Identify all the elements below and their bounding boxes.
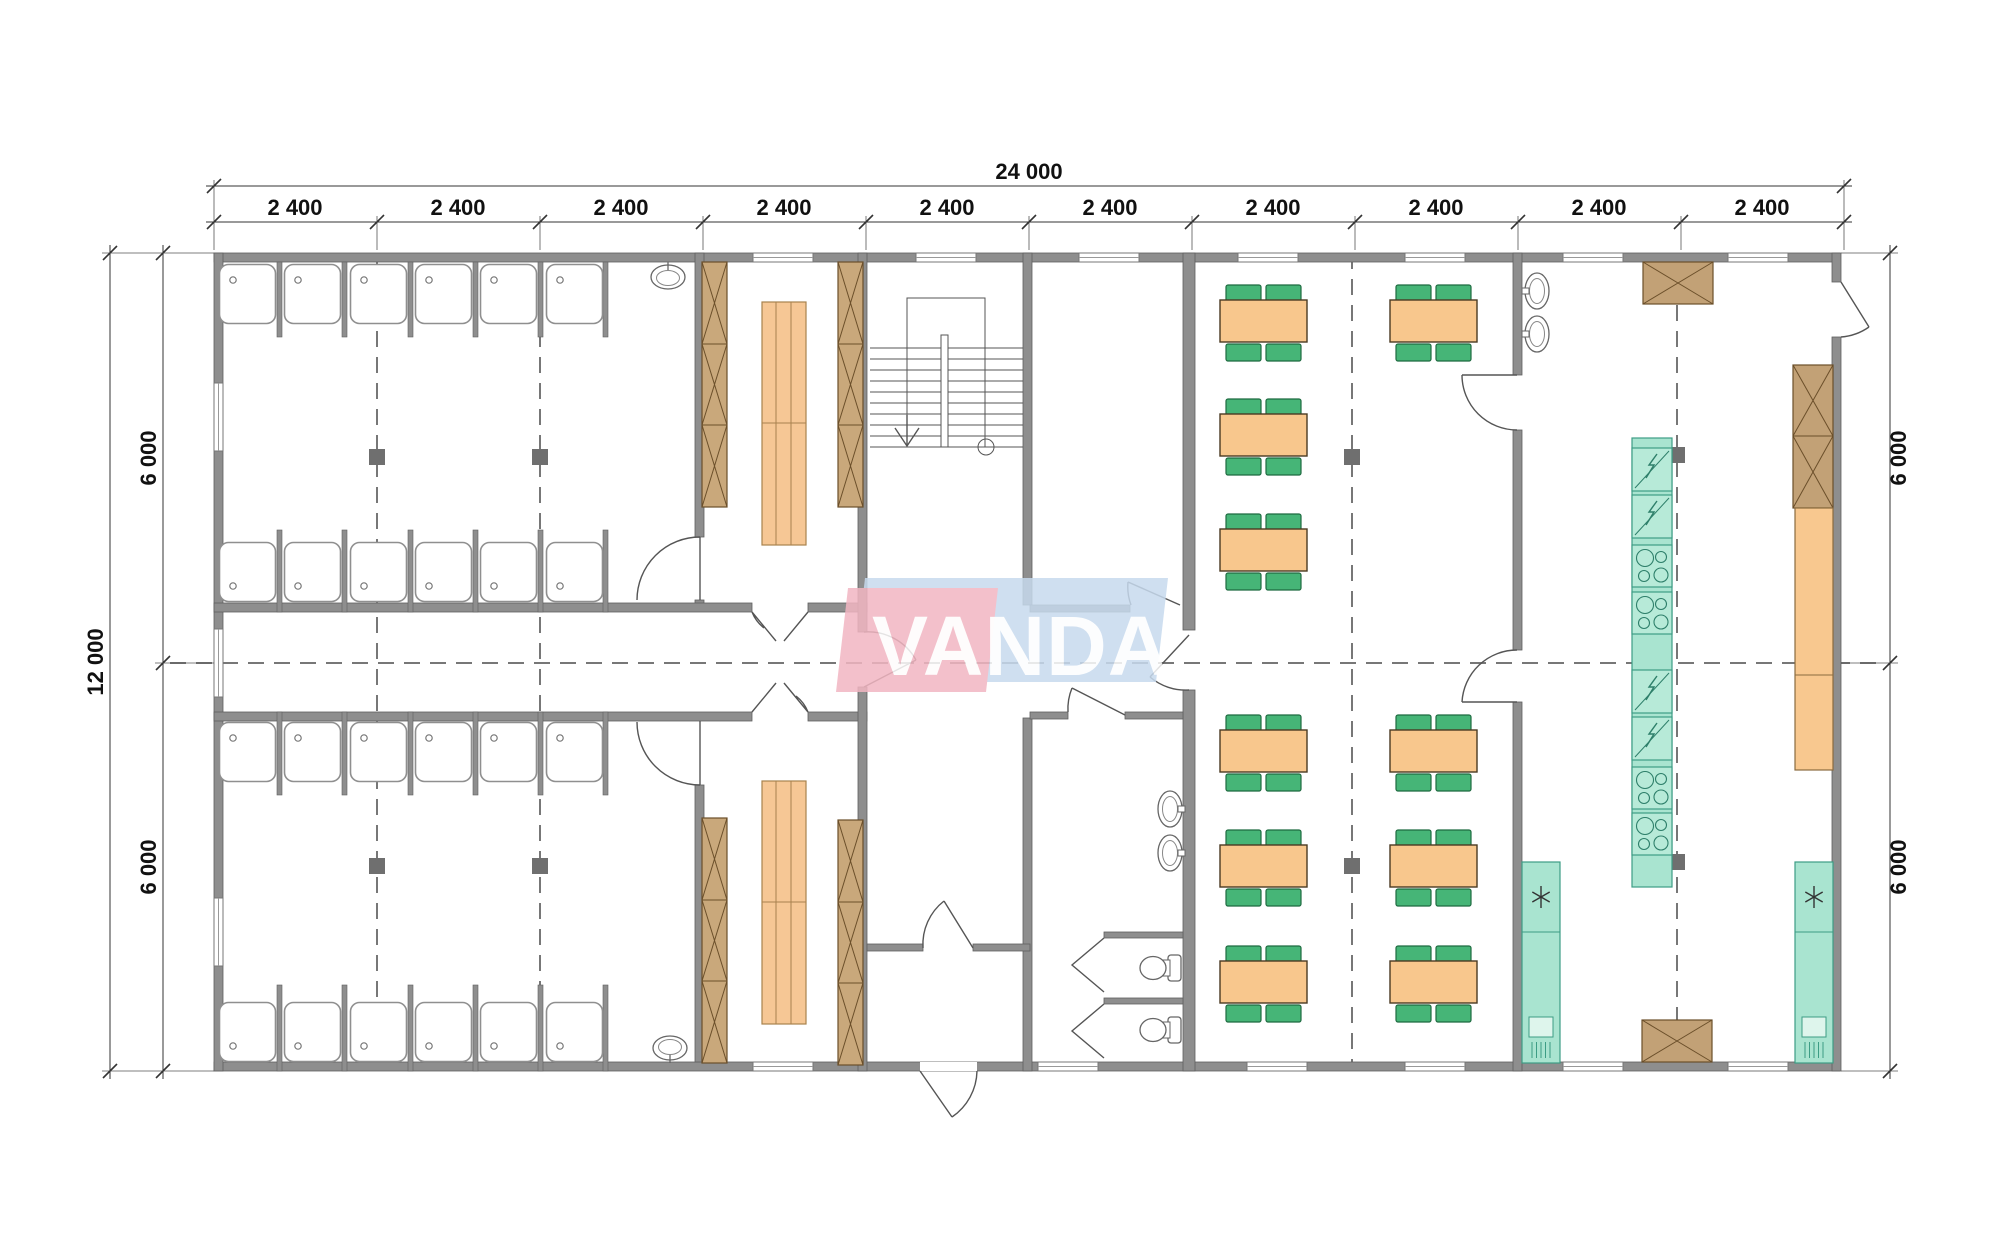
refrigerator bbox=[1795, 862, 1833, 1063]
stove bbox=[1632, 545, 1672, 587]
shower-cabin bbox=[481, 543, 537, 602]
dining-table bbox=[1390, 715, 1477, 791]
wash-sink bbox=[653, 1036, 687, 1063]
locker-column bbox=[838, 820, 863, 1065]
storage-cabinet bbox=[1642, 1020, 1712, 1062]
door-double bbox=[752, 612, 808, 641]
locker-column bbox=[702, 818, 727, 1063]
window bbox=[753, 253, 813, 262]
toilet bbox=[1140, 1017, 1181, 1043]
locker-column bbox=[838, 262, 863, 507]
dim-bay: 2 400 bbox=[1408, 195, 1463, 220]
dim-bay: 2 400 bbox=[1571, 195, 1626, 220]
toilet-room bbox=[1140, 791, 1185, 1043]
door bbox=[637, 721, 700, 785]
shower-cabin bbox=[220, 1003, 276, 1062]
locker-column bbox=[702, 262, 727, 507]
door bbox=[1462, 650, 1517, 702]
electric-appliance bbox=[1632, 670, 1672, 713]
dining-table bbox=[1390, 946, 1477, 1022]
window bbox=[214, 629, 223, 697]
window bbox=[1563, 253, 1623, 262]
dining-table bbox=[1220, 285, 1307, 361]
shower-cabin bbox=[481, 723, 537, 782]
shower-cabin bbox=[416, 543, 472, 602]
shower-cabin bbox=[285, 265, 341, 324]
stair-direction-arrow bbox=[895, 415, 919, 446]
dim-total-width: 24 000 bbox=[995, 159, 1062, 184]
stove bbox=[1632, 592, 1672, 634]
door-entrance bbox=[1841, 282, 1869, 337]
shower-cabin bbox=[416, 265, 472, 324]
shower-cabin bbox=[351, 265, 407, 324]
kitchen-basin bbox=[1522, 273, 1549, 309]
dim-half-height: 6 000 bbox=[136, 839, 161, 894]
door-entrance bbox=[920, 1071, 977, 1117]
shower-cabin bbox=[220, 265, 276, 324]
stair-rail bbox=[941, 335, 948, 447]
wall-right bbox=[1832, 253, 1841, 282]
kitchen-basin bbox=[1522, 316, 1549, 352]
floor-plan-svg: 24 000 2 400 2 400 2 400 2 400 2 400 2 4… bbox=[0, 0, 2000, 1256]
logo-text: VANDA bbox=[872, 599, 1169, 693]
window bbox=[1405, 253, 1465, 262]
dim-half-height: 6 000 bbox=[1886, 839, 1911, 894]
vanda-logo: VANDA bbox=[836, 578, 1169, 693]
window bbox=[214, 383, 223, 451]
dim-bay: 2 400 bbox=[1082, 195, 1137, 220]
electric-appliance bbox=[1632, 495, 1672, 538]
window bbox=[1728, 253, 1788, 262]
electric-appliance bbox=[1632, 717, 1672, 760]
dimension-top: 24 000 2 400 2 400 2 400 2 400 2 400 2 4… bbox=[206, 159, 1852, 250]
shower-cabin bbox=[220, 543, 276, 602]
dim-total-height: 12 000 bbox=[83, 628, 108, 695]
dining-room bbox=[1220, 285, 1477, 1022]
window bbox=[1563, 1062, 1623, 1071]
shower-cabin bbox=[351, 1003, 407, 1062]
dim-bay: 2 400 bbox=[1734, 195, 1789, 220]
window bbox=[916, 253, 976, 262]
stairwell bbox=[870, 298, 1023, 455]
door bbox=[1462, 375, 1517, 430]
dining-table bbox=[1390, 285, 1477, 361]
window bbox=[1038, 1062, 1098, 1071]
dim-bay: 2 400 bbox=[267, 195, 322, 220]
shower-cabin bbox=[351, 543, 407, 602]
dining-table bbox=[1390, 830, 1477, 906]
dining-table bbox=[1220, 514, 1307, 590]
shower-room-top bbox=[220, 262, 686, 612]
shower-cabin bbox=[481, 1003, 537, 1062]
shower-cabin bbox=[547, 543, 603, 602]
window bbox=[1247, 1062, 1307, 1071]
shower-cabin bbox=[285, 1003, 341, 1062]
kitchen-counter bbox=[1795, 508, 1833, 770]
wardrobe-top bbox=[702, 262, 863, 545]
window bbox=[1728, 1062, 1788, 1071]
dim-bay: 2 400 bbox=[430, 195, 485, 220]
storage-cabinet bbox=[1643, 262, 1713, 304]
electric-appliance bbox=[1632, 448, 1672, 491]
door bbox=[923, 901, 973, 948]
shower-cabin bbox=[547, 723, 603, 782]
door bbox=[637, 537, 700, 600]
window bbox=[1405, 1062, 1465, 1071]
shower-cabin bbox=[220, 723, 276, 782]
dining-table bbox=[1220, 946, 1307, 1022]
wash-sink bbox=[651, 262, 685, 289]
dim-half-height: 6 000 bbox=[1886, 430, 1911, 485]
door-wc bbox=[1072, 938, 1104, 992]
shower-room-bottom bbox=[220, 712, 688, 1071]
stove bbox=[1632, 813, 1672, 855]
window bbox=[753, 1062, 813, 1071]
door-double bbox=[752, 683, 808, 712]
toilet bbox=[1140, 955, 1181, 981]
shower-cabin bbox=[547, 265, 603, 324]
shower-cabin bbox=[285, 543, 341, 602]
shower-cabin bbox=[416, 1003, 472, 1062]
storage-cabinet bbox=[1793, 365, 1833, 508]
shower-cabin bbox=[285, 723, 341, 782]
floor-plan-page: 24 000 2 400 2 400 2 400 2 400 2 400 2 4… bbox=[0, 0, 2000, 1256]
wardrobe-bottom bbox=[702, 781, 863, 1065]
lavatory-basin bbox=[1158, 835, 1185, 871]
bench bbox=[762, 781, 806, 1024]
dim-half-height: 6 000 bbox=[136, 430, 161, 485]
shower-cabin bbox=[416, 723, 472, 782]
refrigerator bbox=[1522, 862, 1560, 1063]
bench bbox=[762, 302, 806, 545]
dim-bay: 2 400 bbox=[1245, 195, 1300, 220]
window bbox=[1238, 253, 1298, 262]
shower-cabin bbox=[481, 265, 537, 324]
lavatory-basin bbox=[1158, 791, 1185, 827]
window bbox=[214, 898, 223, 966]
dim-bay: 2 400 bbox=[593, 195, 648, 220]
dim-bay: 2 400 bbox=[919, 195, 974, 220]
stove bbox=[1632, 767, 1672, 809]
dimension-left: 12 000 6 000 6 000 bbox=[83, 245, 214, 1079]
window bbox=[1079, 253, 1139, 262]
dining-table bbox=[1220, 399, 1307, 475]
dim-bay: 2 400 bbox=[756, 195, 811, 220]
shower-cabin bbox=[547, 1003, 603, 1062]
dining-table bbox=[1220, 830, 1307, 906]
door-wc bbox=[1072, 1004, 1104, 1058]
shower-cabin bbox=[351, 723, 407, 782]
dining-table bbox=[1220, 715, 1307, 791]
